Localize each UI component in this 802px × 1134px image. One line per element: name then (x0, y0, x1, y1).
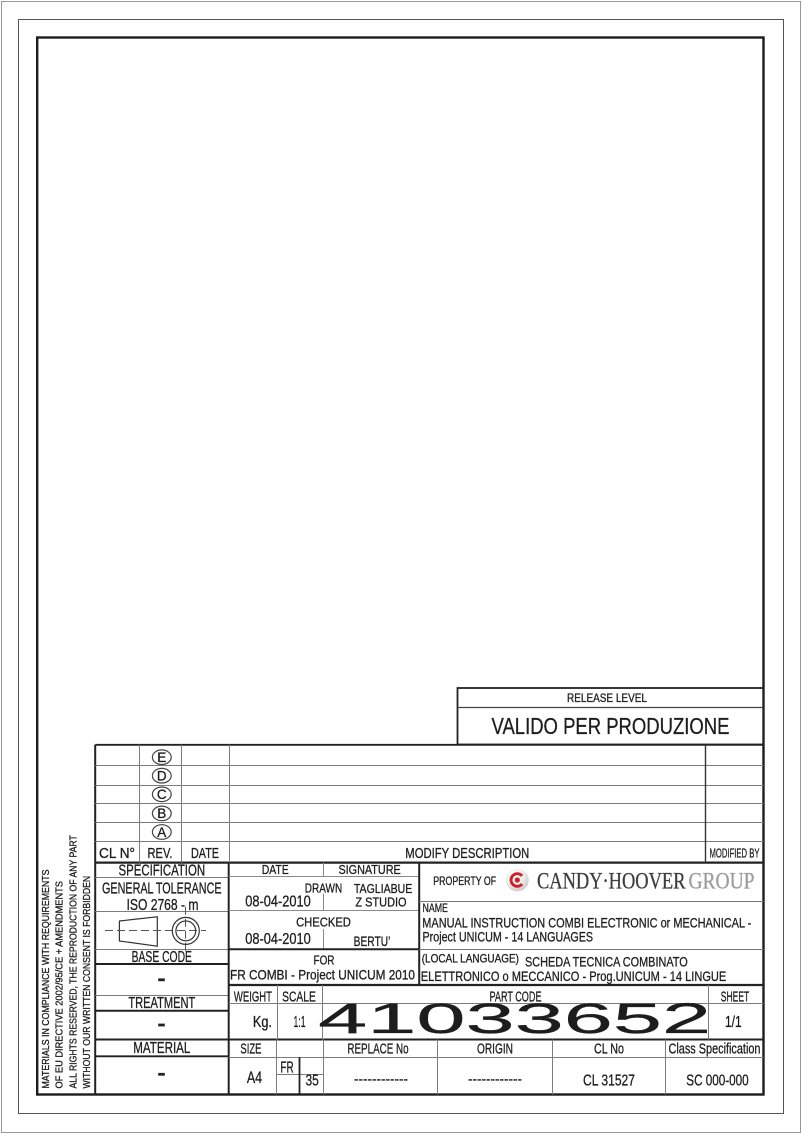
svg-text:B: B (157, 806, 166, 821)
svg-text:E: E (157, 750, 166, 765)
svg-text:(LOCAL LANGUAGE): (LOCAL LANGUAGE) (422, 953, 519, 966)
svg-text:CL No: CL No (594, 1040, 624, 1057)
svg-text:GROUP: GROUP (689, 868, 755, 893)
svg-text:MODIFIED BY: MODIFIED BY (710, 845, 760, 860)
svg-text:FR COMBI - Project UNICUM 2010: FR COMBI - Project UNICUM 2010 (230, 967, 415, 983)
svg-text:ORIGIN: ORIGIN (477, 1040, 513, 1057)
svg-text:BERTU’: BERTU’ (354, 933, 391, 949)
svg-text:A: A (157, 825, 166, 840)
svg-text:08-04-2010: 08-04-2010 (245, 893, 311, 910)
svg-text:REPLACE No: REPLACE No (347, 1040, 408, 1057)
svg-text:SC 000-000: SC 000-000 (686, 1073, 749, 1090)
svg-text:RELEASE LEVEL: RELEASE LEVEL (567, 691, 647, 705)
svg-text:DATE: DATE (262, 862, 289, 877)
svg-text:CHECKED: CHECKED (296, 914, 351, 929)
svg-text:D: D (157, 769, 167, 784)
svg-text:FOR: FOR (314, 952, 335, 967)
svg-text:------------: ------------ (354, 1070, 408, 1086)
svg-text:Class Specification: Class Specification (669, 1040, 761, 1057)
svg-text:MATERIALS IN COMPLIANCE WITH R: MATERIALS IN COMPLIANCE WITH REQUIREMENT… (41, 869, 52, 1088)
svg-text:BASE CODE: BASE CODE (132, 949, 192, 966)
svg-text:SHEET: SHEET (721, 988, 750, 1005)
svg-text:DATE: DATE (191, 845, 219, 862)
svg-text:CANDY·HOOVER: CANDY·HOOVER (537, 868, 686, 893)
svg-text:OF EU DIRECTIVE 2002/95/CE + A: OF EU DIRECTIVE 2002/95/CE + AMENDMENTS (54, 881, 65, 1089)
svg-text:REV.: REV. (148, 845, 173, 862)
svg-text:WEIGHT: WEIGHT (234, 988, 272, 1005)
svg-text:SIZE: SIZE (240, 1040, 261, 1057)
svg-text:SCALE: SCALE (282, 988, 316, 1005)
svg-text:A4: A4 (247, 1069, 262, 1087)
svg-text:PROPERTY OF: PROPERTY OF (433, 875, 496, 888)
svg-text:Project UNICUM - 14 LANGUAGES: Project UNICUM - 14 LANGUAGES (423, 929, 594, 945)
svg-text:08-04-2010: 08-04-2010 (245, 931, 311, 948)
svg-text:WITHOUT OUR WRITTEN CONSENT IS: WITHOUT OUR WRITTEN CONSENT IS FORBIDDEN (82, 876, 93, 1089)
svg-text:ELETTRONICO o MECCANICO - Prog: ELETTRONICO o MECCANICO - Prog.UNICUM - … (421, 968, 727, 984)
svg-text:1:1: 1:1 (294, 1014, 306, 1031)
svg-text:FR: FR (280, 1059, 293, 1076)
svg-text:VALIDO PER PRODUZIONE: VALIDO PER PRODUZIONE (492, 713, 730, 739)
svg-text:ISO 2768 - m: ISO 2768 - m (127, 897, 199, 914)
svg-text:C: C (157, 787, 167, 802)
svg-text:Z STUDIO: Z STUDIO (355, 895, 406, 910)
svg-text:MODIFY DESCRIPTION: MODIFY DESCRIPTION (405, 845, 529, 862)
svg-text:CL 31527: CL 31527 (583, 1073, 635, 1090)
svg-text:SPECIFICATION: SPECIFICATION (119, 862, 206, 879)
svg-text:Kg.: Kg. (253, 1014, 272, 1031)
svg-text:1/1: 1/1 (725, 1014, 742, 1031)
svg-text:CL N°: CL N° (99, 845, 135, 862)
svg-text:MATERIAL: MATERIAL (133, 1040, 190, 1057)
svg-text:41033652: 41033652 (318, 996, 711, 1043)
svg-text:GENERAL TOLERANCE: GENERAL TOLERANCE (102, 881, 222, 898)
svg-text:SIGNATURE: SIGNATURE (338, 862, 401, 877)
svg-text:TREATMENT: TREATMENT (128, 995, 195, 1012)
svg-text:------------: ------------ (468, 1070, 522, 1086)
svg-text:35: 35 (305, 1073, 318, 1090)
svg-text:NAME: NAME (423, 902, 449, 915)
svg-text:ALL RIGHTS RESERVED, THE REPRO: ALL RIGHTS RESERVED, THE REPRODUCTION OF… (69, 835, 80, 1088)
